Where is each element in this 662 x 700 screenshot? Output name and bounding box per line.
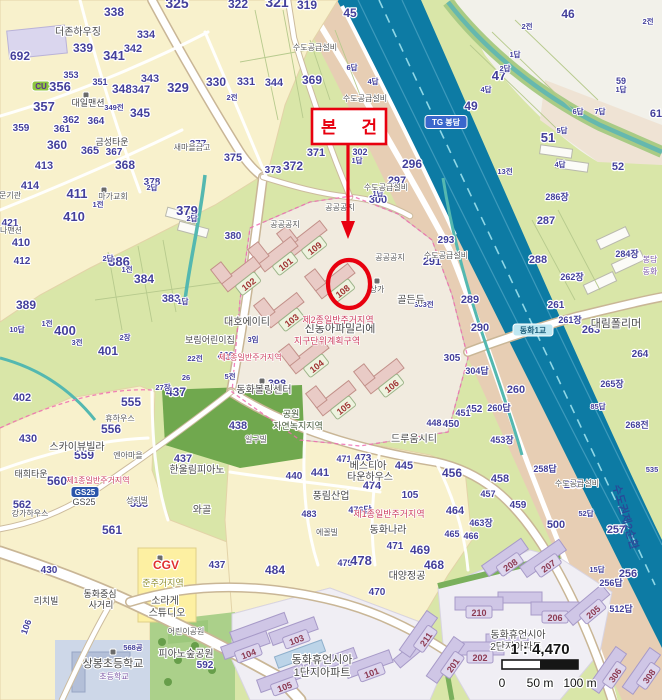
map-label: 1답 — [177, 296, 188, 306]
svg-text:GS25: GS25 — [75, 488, 96, 497]
map-label: 스카이뷰빌라 — [49, 441, 104, 453]
map-label: 10답 — [9, 324, 24, 334]
scale-tick-0: 0 — [499, 676, 506, 690]
scale-ratio: 1 : 4,470 — [510, 641, 569, 658]
map-label: 51 — [541, 130, 555, 145]
map-label: 대일맨션 — [71, 98, 104, 108]
map-label: 437 — [209, 560, 226, 571]
map-label: 대양정공 — [389, 570, 426, 582]
map-label: 361 — [54, 124, 71, 135]
map-label: 305 — [444, 353, 461, 364]
map-badge: GS25 — [71, 487, 99, 498]
map-label: 260답 — [487, 402, 511, 413]
map-label: 수도공급설비 — [343, 93, 387, 103]
scale-tick-50: 50 m — [527, 676, 554, 690]
map-label: 더존하우징 — [55, 25, 101, 38]
svg-text:CU: CU — [35, 82, 47, 91]
map-label: 325 — [165, 0, 189, 11]
map-label: 342 — [124, 43, 142, 55]
map-label: 463장 — [469, 517, 493, 528]
map-label: 5전 — [224, 371, 235, 381]
map-label: 334 — [137, 29, 156, 41]
map-label: 561 — [102, 523, 122, 537]
map-label: 수도공급설비 — [424, 250, 468, 260]
map-label: 359 — [13, 123, 30, 134]
map-label: 엔아마을 — [113, 450, 142, 460]
map-label: 304답 — [465, 365, 489, 376]
map-label: 329 — [167, 80, 189, 95]
map-label: 타운하우스 — [347, 470, 393, 483]
map-label: 강가하우스 — [12, 508, 49, 518]
map-label: 322 — [228, 0, 248, 11]
map-label: 6답 — [346, 62, 357, 72]
map-label: 414 — [21, 180, 40, 192]
map-label: 478 — [350, 553, 372, 568]
map-label: 258답 — [533, 463, 557, 474]
map-label: 4답 — [480, 84, 491, 94]
map-label: 289 — [461, 294, 479, 306]
map-label: 제2종일반주거지역 — [302, 315, 373, 325]
poi-icon — [259, 378, 265, 384]
map-label: 372 — [283, 159, 303, 173]
map-label: 2답 — [186, 213, 197, 223]
map-label: 371 — [307, 147, 325, 159]
map-label: 보림어린이집 — [185, 334, 235, 345]
map-label: 사거리 — [89, 600, 114, 610]
poi-icon — [110, 649, 116, 655]
map-label: 448 — [426, 418, 441, 428]
map-label: 261 — [548, 300, 565, 311]
map-label: 46 — [561, 7, 575, 21]
map-label: 468 — [424, 558, 444, 572]
map-label: 555 — [121, 395, 141, 409]
map-label: 동화 — [643, 267, 658, 276]
map-label: 330 — [206, 75, 226, 89]
map-label: 2답 — [146, 182, 157, 192]
map-label: 동화휴언시아 — [292, 653, 353, 666]
map-label: 459 — [510, 500, 527, 511]
map-label: 문기관 — [0, 190, 22, 200]
map-label: 52 — [612, 161, 624, 173]
map-label: 260 — [507, 384, 525, 396]
map-label: 369 — [302, 73, 322, 87]
map-badge: 동화1교 — [513, 324, 553, 336]
map-label: 22전 — [187, 353, 202, 363]
map-label: 리치빌 — [34, 595, 59, 606]
map-label: 339 — [73, 41, 93, 55]
svg-text:210: 210 — [471, 608, 486, 618]
map-label: 402 — [13, 392, 31, 404]
map-label: 568공 — [123, 643, 143, 652]
map-label: 265장 — [600, 378, 624, 389]
map-label: 469 — [410, 543, 430, 557]
svg-text:202: 202 — [472, 653, 487, 663]
map-label: 2전 — [521, 21, 532, 31]
map-label: 제1종일반주거지역 — [66, 475, 129, 485]
map-label: 동화볼링센터 — [236, 384, 291, 396]
map-label: 공공공지 — [375, 253, 404, 262]
map-label: 나맨션 — [0, 225, 22, 235]
map-label: 6답 — [572, 106, 583, 116]
map-label: 일구빌 — [245, 434, 267, 444]
map-label: 438 — [229, 420, 247, 432]
map-label: 1답 — [509, 49, 520, 59]
map-label: 13전 — [497, 166, 512, 176]
map-label: 331 — [237, 76, 255, 88]
map-label: 4답 — [367, 76, 378, 86]
map-label: 457 — [480, 489, 495, 499]
map-label: 288 — [529, 254, 547, 266]
map-label: 공공공지 — [325, 203, 354, 212]
map-label: 49 — [464, 99, 478, 113]
map-label: 피아노숲공원 — [158, 648, 213, 660]
map-label: 동화중심 — [83, 589, 116, 599]
map-label: 새마을금고 — [174, 143, 211, 152]
map-label: 드루움시티 — [391, 433, 437, 445]
map-label: 1답 — [351, 155, 362, 165]
map-label: 1전 — [41, 318, 52, 328]
map-label: 453장 — [490, 434, 514, 445]
map-label: 341 — [103, 48, 125, 63]
map-label: 한울림피아노 — [169, 464, 224, 476]
map-label: 26 — [182, 373, 190, 382]
map-label: 483 — [301, 509, 316, 519]
map-label: 348 — [112, 82, 132, 96]
map-label: 262장 — [560, 271, 584, 282]
map-label: 85답 — [590, 401, 605, 411]
map-label: 360 — [47, 138, 67, 152]
map-label: 471 — [387, 541, 404, 552]
map-label: 공공공지 — [270, 220, 299, 229]
map-label: 464 — [446, 505, 465, 517]
map-label: 자연녹지지역 — [273, 421, 323, 431]
map-label: 봉담 — [643, 254, 658, 264]
map-label: 1단지아파트 — [294, 666, 351, 679]
map-label: 560 — [47, 474, 67, 488]
map-label: 287 — [537, 215, 555, 227]
map-label: 345 — [130, 106, 150, 120]
map-label: 에꼴빌 — [316, 527, 338, 537]
map-label: 256답 — [599, 577, 623, 588]
map-label: 수도공급설비 — [293, 42, 337, 52]
map-label: 592 — [197, 660, 214, 671]
map-label: 412 — [14, 256, 31, 267]
map-label: 458 — [491, 473, 509, 485]
map-label: 3전 — [71, 337, 82, 347]
map-label: 556 — [101, 422, 121, 436]
svg-text:TG 봉담: TG 봉담 — [432, 117, 461, 127]
map-label: 1전 — [121, 264, 132, 274]
map-label: 7답 — [594, 106, 605, 116]
map-label: 384 — [134, 272, 154, 286]
map-label: 351 — [92, 77, 107, 87]
map-label: 수도공급설비 — [555, 478, 599, 488]
map-label: 2답 — [499, 63, 510, 73]
map-label: 대호에이티 — [224, 316, 270, 328]
map-label: 401 — [98, 344, 118, 358]
map-label: 356 — [49, 79, 71, 94]
map-label: CGV — [153, 558, 179, 572]
map-label: 대림폴리머 — [591, 317, 642, 330]
map-label: 상봉초등학교 — [83, 657, 144, 670]
map-canvas: 1091011021081031041051062082072102062052… — [0, 0, 662, 700]
map-label: 261장 — [558, 314, 582, 325]
map-label: 2답 — [102, 253, 113, 263]
map-label: 골든듀 — [397, 294, 425, 306]
map-label: 268전 — [625, 419, 648, 430]
map-label: 389 — [16, 298, 36, 312]
map-label: 소라게 — [151, 595, 179, 607]
map-label: 동화나라 — [370, 524, 407, 536]
map-label: 제1종일반주거지역 — [353, 509, 424, 519]
map-label: 440 — [286, 471, 303, 482]
map-label: 441 — [311, 467, 329, 479]
map-label: 347 — [132, 84, 150, 96]
map-label: 264 — [632, 349, 649, 360]
map-label: 411 — [67, 186, 88, 201]
map-label: 430 — [41, 565, 58, 576]
map-label: 344 — [265, 77, 284, 89]
map-label: 휴하우스 — [105, 413, 134, 423]
map-label: 380 — [225, 231, 242, 242]
map-label: 375 — [224, 152, 242, 164]
map-label: 484 — [265, 563, 285, 577]
map-label: 초등학교 — [99, 671, 128, 681]
map-label: 제1종일반주거지역 — [218, 352, 281, 362]
poi-icon — [374, 278, 380, 284]
map-label: 스튜디오 — [149, 607, 186, 619]
map-label: 61 — [650, 108, 662, 120]
map-label: 451 — [455, 408, 470, 418]
map-label: 공원 — [283, 409, 300, 419]
map-label: 465 — [444, 529, 459, 539]
map-label: 45 — [343, 6, 357, 20]
map-label: 535 — [646, 465, 659, 474]
map-label: 364 — [88, 116, 105, 127]
map-label: 349전 — [104, 102, 124, 112]
map-label: 동화휴언시아 — [490, 629, 545, 641]
map-label: 금성타운 — [95, 137, 128, 147]
annotation-label: 본 건 — [321, 118, 387, 137]
map-label: 2장 — [119, 332, 130, 342]
map-label: 105 — [402, 490, 419, 501]
map-label: 와골 — [193, 504, 211, 516]
map-label: 준주거지역 — [142, 578, 183, 588]
svg-text:동화1교: 동화1교 — [520, 325, 547, 335]
map-label: 466 — [463, 531, 478, 541]
map-label: 410 — [12, 237, 30, 249]
map-label: 368 — [115, 158, 135, 172]
map-label: 290 — [471, 322, 489, 334]
map-label: 1답 — [615, 84, 626, 94]
map-label: 430 — [19, 433, 37, 445]
map-label: 692 — [10, 49, 30, 63]
map-label: 367 — [106, 147, 123, 158]
map-label: 470 — [369, 587, 386, 598]
map-label: 400 — [54, 323, 76, 338]
map-label: 마가교회 — [98, 192, 127, 201]
map-label: 450 — [443, 419, 460, 430]
map-label: 338 — [104, 5, 124, 19]
map-label: 15답 — [589, 564, 604, 574]
map-label: 5답 — [556, 125, 567, 135]
map-label: 296 — [402, 157, 422, 171]
map-label: 2전 — [226, 92, 237, 102]
map-label: 태희타운 — [14, 468, 47, 479]
svg-text:206: 206 — [547, 613, 562, 623]
map-label: 512답 — [609, 603, 633, 614]
map-label: 3임 — [247, 334, 258, 344]
map-label: 284장 — [615, 248, 639, 259]
map-badge: TG 봉담 — [425, 116, 467, 129]
map-label: 500 — [547, 519, 565, 531]
map-label: 베스티아 — [350, 460, 387, 472]
map-label: 373 — [265, 165, 282, 176]
map-label: 27장 — [155, 382, 170, 392]
map-label: 321 — [265, 0, 289, 10]
map-label: 293 — [438, 235, 455, 246]
map-label: 456 — [442, 466, 462, 480]
map-label: 4답 — [554, 159, 565, 169]
map-label: 413 — [35, 160, 53, 172]
scale-tick-100: 100 m — [563, 676, 596, 690]
map-badge: CU — [32, 81, 50, 91]
map-label: 풍림산업 — [313, 489, 350, 502]
map-label: 2전 — [642, 16, 653, 26]
map-label: 수도공급설비 — [364, 182, 408, 192]
map-label: 성지빌 — [126, 495, 148, 505]
map-label: 410 — [63, 209, 85, 224]
map-screenshot: 1091011021081031041051062082072102062052… — [0, 0, 662, 700]
map-label: 지구단위계획구역 — [294, 335, 360, 346]
map-label: 437 — [174, 453, 192, 465]
map-label: 어린이공원 — [168, 626, 205, 636]
map-label: 445 — [395, 460, 413, 472]
map-label: 286장 — [545, 191, 569, 202]
map-label: GS25 — [72, 497, 95, 507]
map-label: 52답 — [578, 508, 593, 518]
map-label: 319 — [297, 0, 317, 12]
map-label: 357 — [33, 99, 55, 114]
